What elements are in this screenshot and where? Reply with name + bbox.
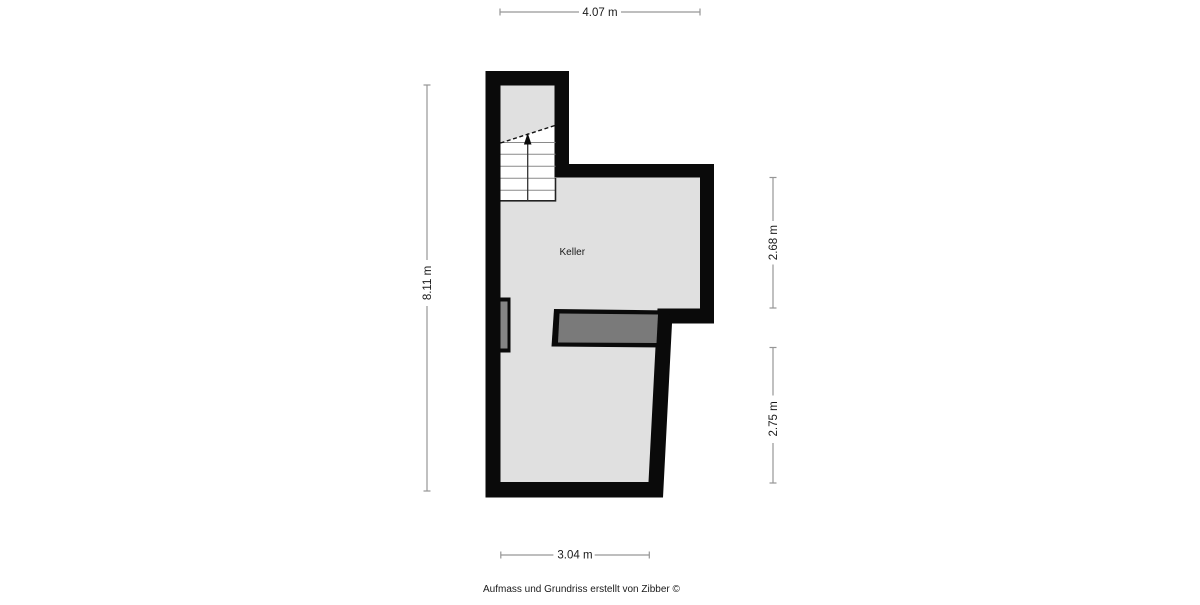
svg-text:Aufmass und Grundriss erstellt: Aufmass und Grundriss erstellt von Zibbe…	[483, 584, 681, 595]
svg-text:4.07 m: 4.07 m	[582, 7, 617, 19]
svg-text:Keller: Keller	[560, 247, 586, 258]
svg-text:2.68 m: 2.68 m	[768, 225, 780, 260]
svg-text:2.75 m: 2.75 m	[768, 401, 780, 436]
svg-text:3.04 m: 3.04 m	[557, 550, 592, 562]
svg-text:8.11 m: 8.11 m	[422, 266, 434, 300]
